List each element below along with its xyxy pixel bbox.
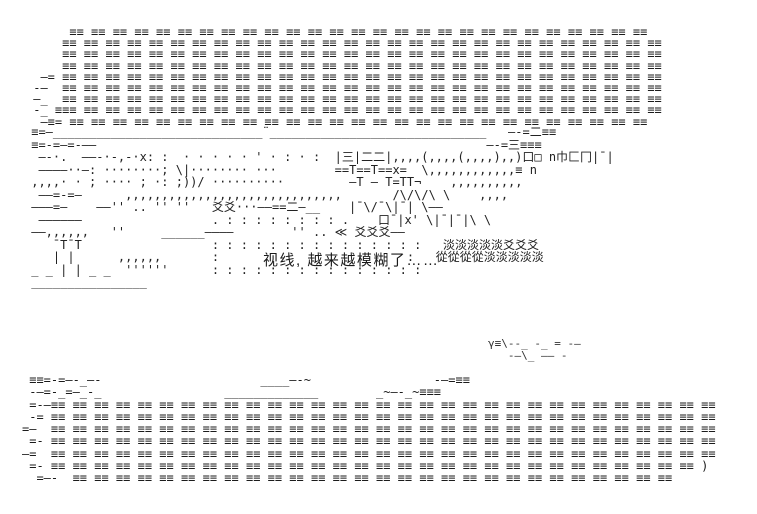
- dialog-text: 视线, 越来越模糊了……: [263, 249, 439, 270]
- top-banner-aa: ≡≡ ≡≡ ≡≡ ≡≡ ≡≡ ≡≡ ≡≡ ≡≡ ≡≡ ≡≡ ≡≡ ≡≡ ≡≡ ≡…: [26, 27, 662, 128]
- bottom-banner-aa: ≡≡=-=—-_—- ____—-~ -—=≡≡ -—=-_=—_-_ ____…: [22, 374, 716, 485]
- aa-artwork: ≡≡ ≡≡ ≡≡ ≡≡ ≡≡ ≡≡ ≡≡ ≡≡ ≡≡ ≡≡ ≡≡ ≡≡ ≡≡ ≡…: [0, 0, 757, 514]
- drift-marks-aa: γ≡\--_ -_ = -— -—\_ —— -: [488, 338, 581, 362]
